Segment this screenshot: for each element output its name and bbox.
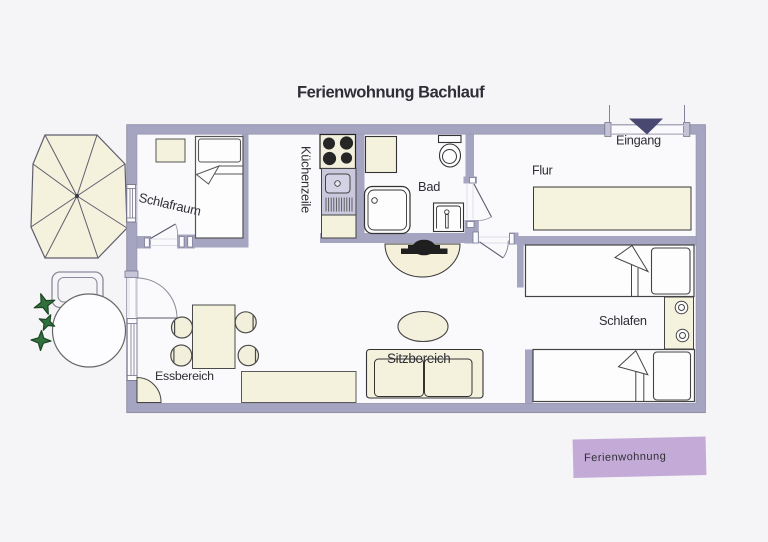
- svg-text:Eingang: Eingang: [616, 133, 661, 148]
- svg-text:Sitzbereich: Sitzbereich: [387, 351, 451, 366]
- svg-text:Ferienwohnung Bachlauf: Ferienwohnung Bachlauf: [297, 84, 485, 102]
- svg-text:Bad: Bad: [418, 179, 440, 194]
- svg-text:Essbereich: Essbereich: [155, 369, 214, 383]
- svg-text:Küchenzeile: Küchenzeile: [299, 146, 314, 213]
- svg-text:Flur: Flur: [532, 164, 552, 178]
- svg-text:Ferienwohnung: Ferienwohnung: [584, 450, 667, 464]
- svg-text:Schlafen: Schlafen: [599, 313, 647, 328]
